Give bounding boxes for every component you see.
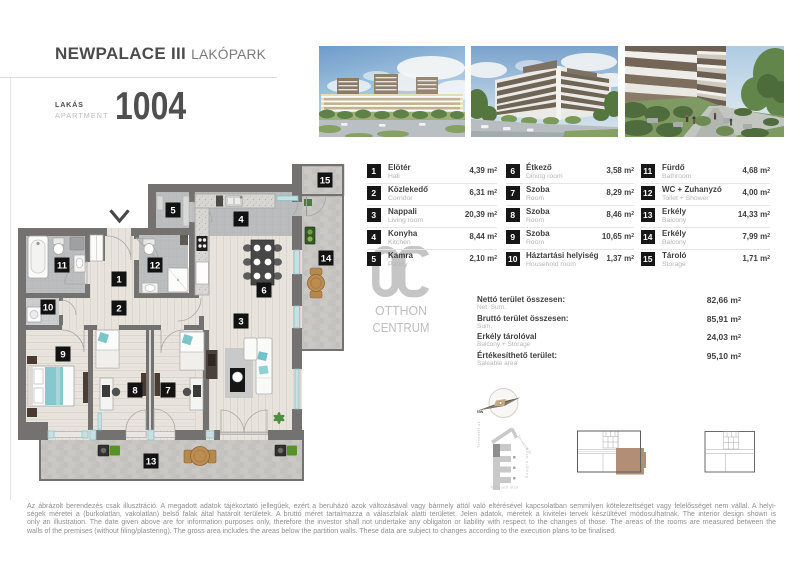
svg-text:1: 1 [116,274,122,285]
svg-text:7: 7 [165,385,170,396]
svg-text:8: 8 [132,385,137,396]
svg-text:14: 14 [321,253,332,264]
svg-text:Tervezett utca: Tervezett utca [490,486,518,490]
svg-text:9: 9 [60,349,65,360]
svg-text:CENTRUM: CENTRUM [373,320,430,335]
svg-text:NW: NW [477,410,484,414]
svg-text:2: 2 [116,303,121,314]
svg-text:6: 6 [261,285,266,296]
svg-text:OTTHON: OTTHON [375,303,427,318]
svg-text:3: 3 [238,316,243,327]
svg-text:Tervezett út: Tervezett út [477,422,481,448]
svg-text:5: 5 [170,205,176,216]
svg-text:11: 11 [57,260,68,271]
svg-text:4: 4 [238,214,244,225]
svg-text:15: 15 [320,175,331,186]
svg-text:Szugló utca: Szugló utca [525,448,529,478]
svg-text:13: 13 [146,456,157,467]
svg-text:10: 10 [43,302,54,313]
svg-text:12: 12 [150,260,161,271]
